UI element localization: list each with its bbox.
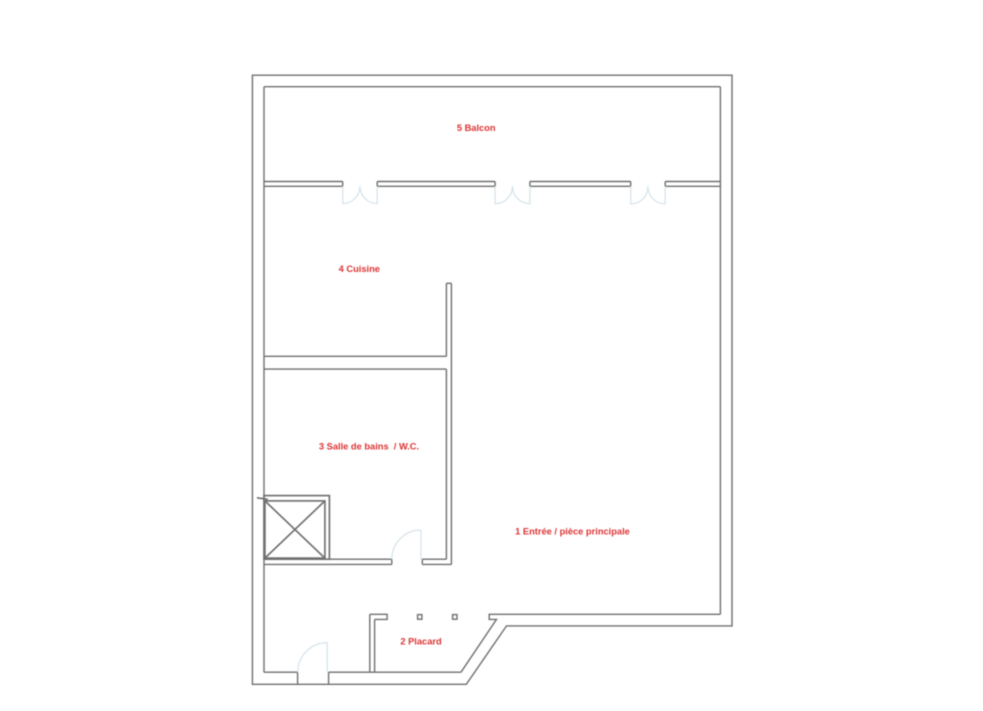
svg-text:3 Salle de bains / W.C.: 3 Salle de bains / W.C.	[319, 442, 419, 452]
svg-text:1 Entrée / pièce principale: 1 Entrée / pièce principale	[515, 527, 630, 537]
svg-text:4 Cuisine: 4 Cuisine	[339, 264, 380, 274]
svg-text:5 Balcon: 5 Balcon	[457, 123, 496, 133]
svg-text:2 Placard: 2 Placard	[400, 637, 442, 647]
